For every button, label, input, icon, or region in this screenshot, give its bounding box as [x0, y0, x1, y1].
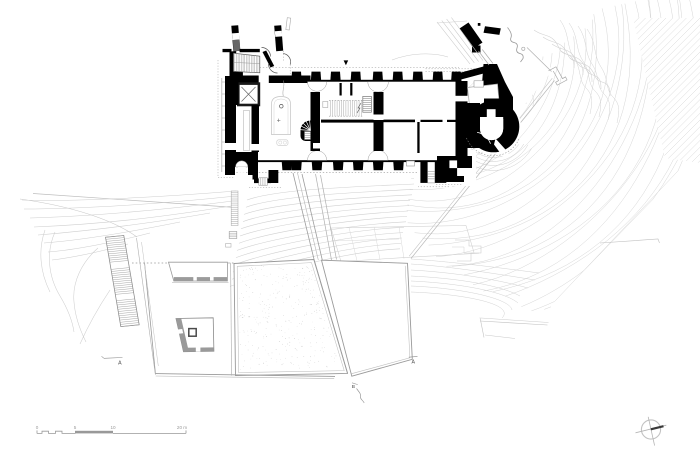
svg-text:5: 5 — [74, 425, 77, 430]
svg-text:B: B — [352, 384, 355, 390]
svg-text:10: 10 — [110, 425, 116, 430]
svg-text:20 m: 20 m — [177, 425, 187, 430]
svg-text:A: A — [411, 359, 415, 365]
svg-text:0: 0 — [36, 425, 39, 430]
svg-text:A: A — [118, 360, 122, 366]
